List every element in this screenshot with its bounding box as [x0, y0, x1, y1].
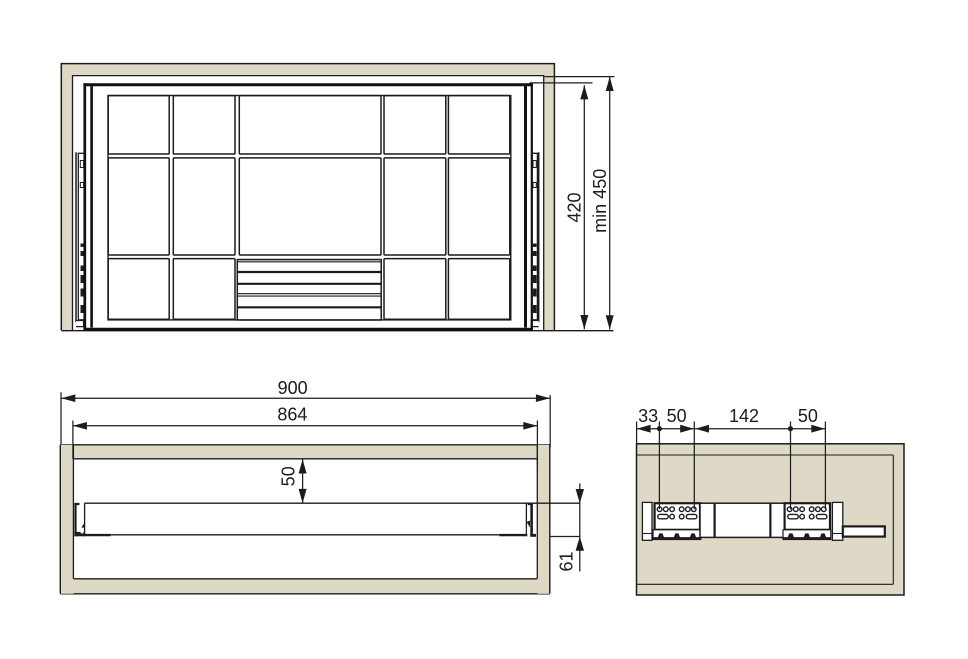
- svg-text:min 450: min 450: [590, 169, 610, 233]
- svg-text:33: 33: [638, 406, 658, 426]
- svg-text:50: 50: [667, 406, 687, 426]
- svg-text:142: 142: [729, 406, 759, 426]
- svg-text:420: 420: [564, 192, 584, 222]
- svg-text:900: 900: [278, 378, 308, 398]
- svg-text:50: 50: [798, 406, 818, 426]
- svg-text:61: 61: [557, 551, 577, 571]
- svg-text:864: 864: [277, 404, 307, 424]
- svg-text:50: 50: [279, 466, 299, 486]
